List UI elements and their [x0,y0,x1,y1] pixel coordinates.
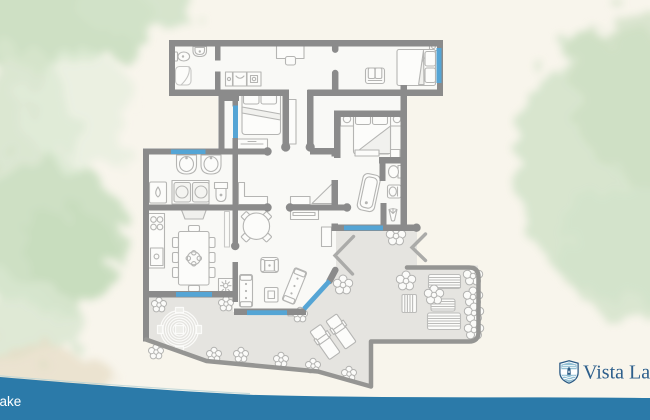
svg-text:ake: ake [0,394,21,409]
svg-text:Vista Lake: Vista Lake [583,362,650,384]
